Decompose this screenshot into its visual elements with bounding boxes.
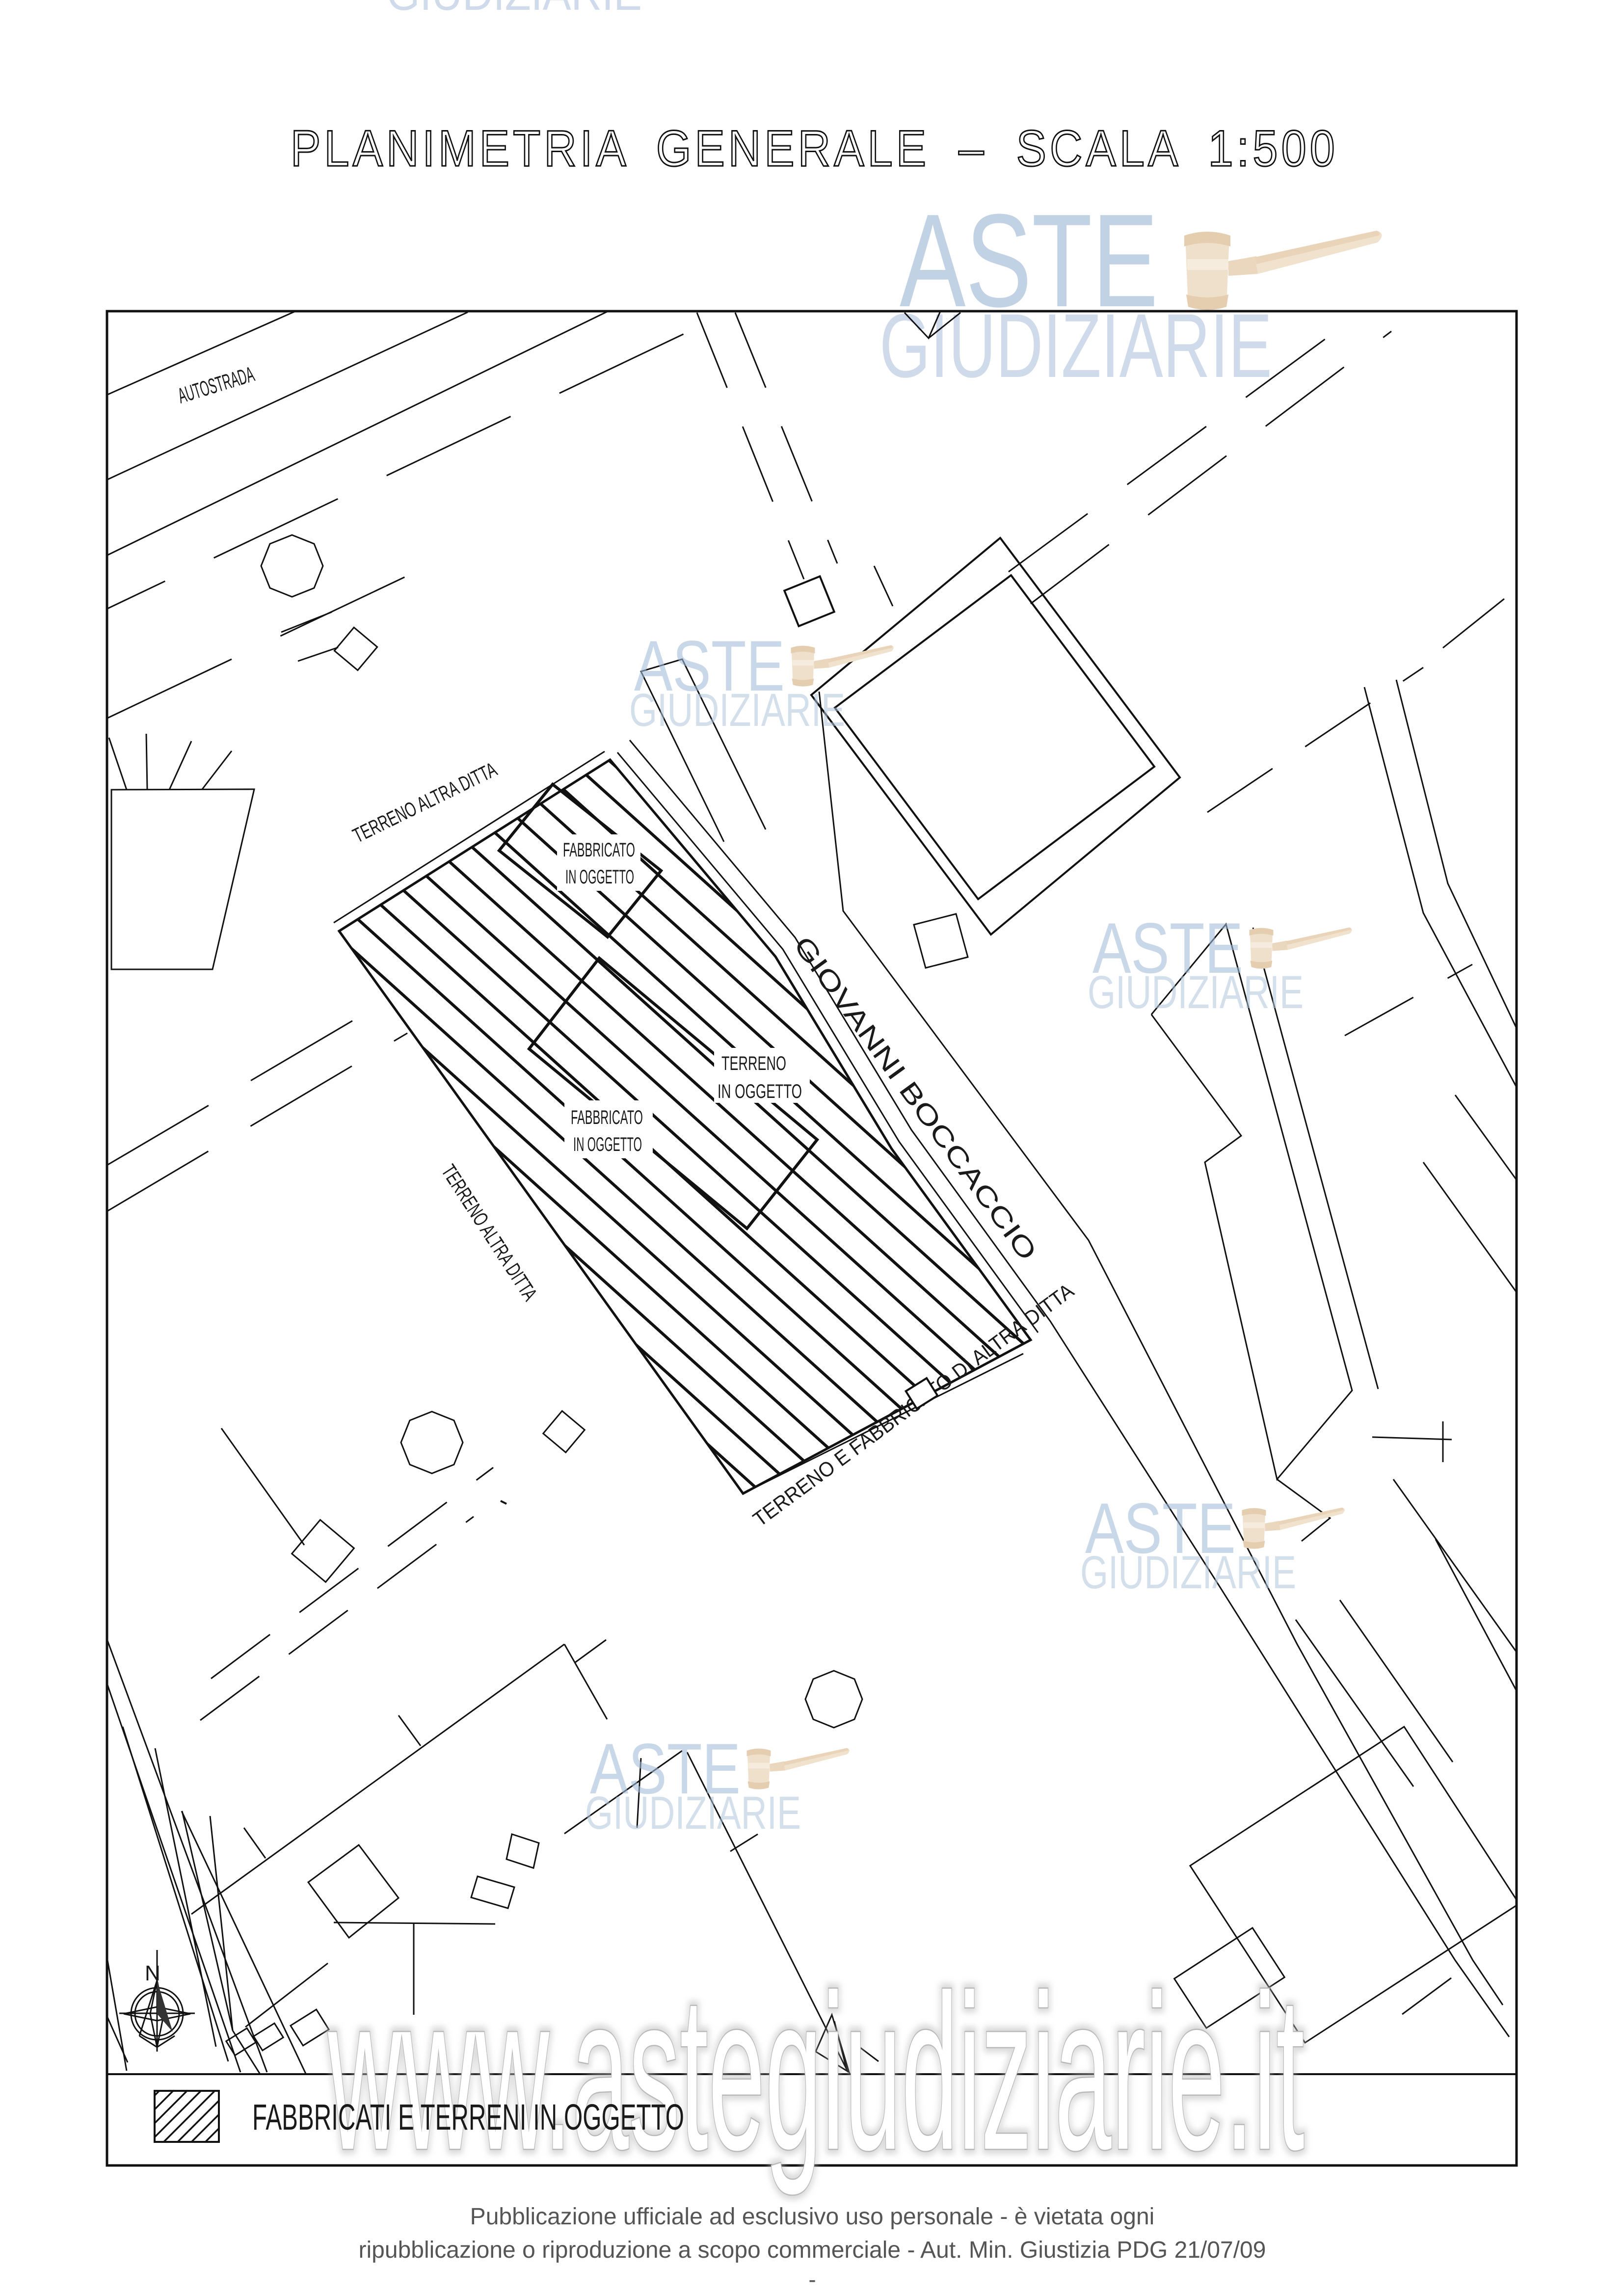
svg-text:FABBRICATI E TERRENI IN OGGETT: FABBRICATI E TERRENI IN OGGETTO	[252, 2097, 684, 2137]
svg-text:PLANIMETRIA GENERALE – SCALA 1: PLANIMETRIA GENERALE – SCALA 1:500	[291, 120, 1338, 177]
svg-text:GIUDIZIARIE: GIUDIZIARIE	[387, 0, 642, 20]
svg-text:IN OGGETTO: IN OGGETTO	[565, 866, 634, 888]
svg-text:IN OGGETTO: IN OGGETTO	[718, 1081, 802, 1102]
svg-text:www.astegiudiziarie.it: www.astegiudiziarie.it	[326, 1949, 1305, 2197]
svg-text:FABBRICATO: FABBRICATO	[571, 1107, 643, 1128]
svg-text:FABBRICATO: FABBRICATO	[563, 839, 635, 861]
svg-text:-: -	[808, 2267, 816, 2292]
svg-text:N: N	[145, 1961, 160, 1985]
svg-text:Pubblicazione ufficiale ad esc: Pubblicazione ufficiale ad esclusivo uso…	[470, 2204, 1155, 2230]
svg-text:IN OGGETTO: IN OGGETTO	[573, 1134, 642, 1155]
svg-text:TERRENO: TERRENO	[721, 1053, 786, 1074]
svg-text:ripubblicazione o riproduzione: ripubblicazione o riproduzione a scopo c…	[359, 2237, 1266, 2263]
